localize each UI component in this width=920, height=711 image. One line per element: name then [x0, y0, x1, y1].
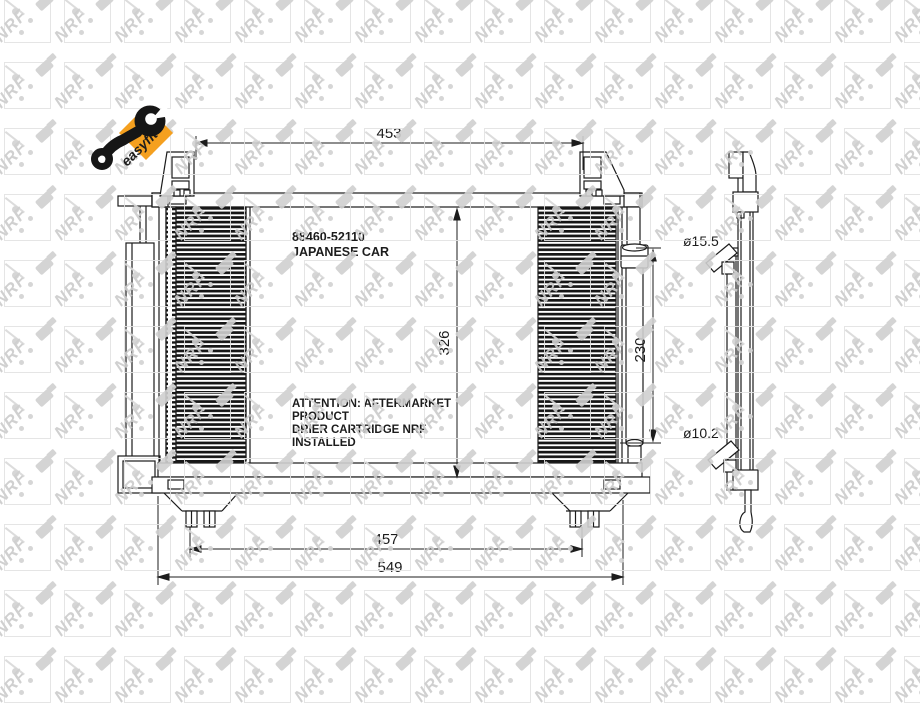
dim-mount-width-label: 457 — [373, 531, 398, 548]
attention-note-line4: INSTALLED — [292, 437, 356, 449]
dim-core-height-label: 326 — [436, 330, 453, 355]
inlet-diameter-label: ø15.5 — [683, 233, 719, 249]
dim-overall-width-label: 549 — [377, 559, 402, 576]
attention-note-line2: PRODUCT — [292, 411, 349, 423]
dim-core-height — [454, 209, 460, 477]
bottom-right-foot — [552, 493, 628, 527]
attention-note-line3: DRIER CARTRIDGE NRF — [292, 424, 426, 436]
top-right-bracket — [580, 152, 624, 196]
part-number: 88460-52110 — [292, 230, 365, 244]
side-bottom-clamp — [733, 470, 758, 490]
receiver-drier — [621, 207, 648, 466]
left-shroud-plate — [118, 205, 160, 493]
attention-note-line1: ATTENTION: AFTERMARKET — [292, 398, 451, 410]
side-bottom-hook — [740, 490, 752, 532]
bottom-header-tank — [152, 463, 650, 493]
catalog-product-drawing-page: { "badge": { "label": "easyfit", "color"… — [0, 0, 920, 708]
side-top-clamp — [733, 192, 758, 212]
dim-drier-height-label: 230 — [632, 337, 649, 362]
side-view — [706, 152, 758, 532]
side-main-tube — [738, 212, 753, 470]
side-top-bracket — [729, 152, 756, 193]
bottom-left-foot — [164, 493, 238, 527]
vehicle-label: JAPANESE CAR — [292, 245, 389, 259]
easyfit-badge: easyfit — [85, 95, 215, 215]
dim-top-width-label: 453 — [376, 125, 401, 142]
outlet-diameter-label: ø10.2 — [683, 425, 719, 441]
